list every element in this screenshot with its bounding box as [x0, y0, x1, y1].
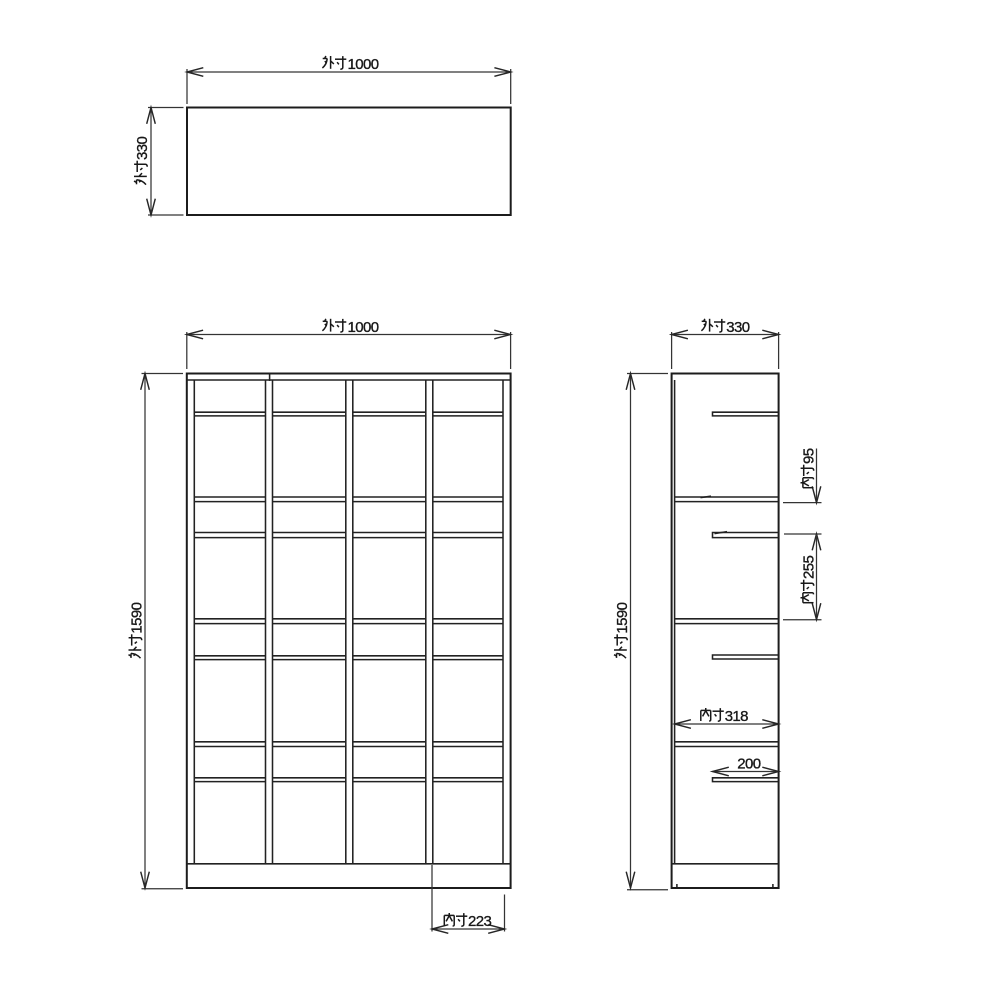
svg-text:330: 330 [726, 319, 749, 336]
svg-text:1000: 1000 [348, 319, 379, 336]
svg-text:200: 200 [737, 756, 760, 773]
svg-text:1590: 1590 [614, 602, 631, 633]
svg-text:1590: 1590 [129, 602, 146, 633]
svg-text:223: 223 [468, 913, 491, 930]
svg-text:95: 95 [801, 448, 818, 464]
svg-text:1000: 1000 [348, 56, 379, 73]
svg-text:330: 330 [134, 137, 151, 160]
svg-text:255: 255 [801, 556, 818, 579]
svg-text:318: 318 [725, 708, 748, 725]
